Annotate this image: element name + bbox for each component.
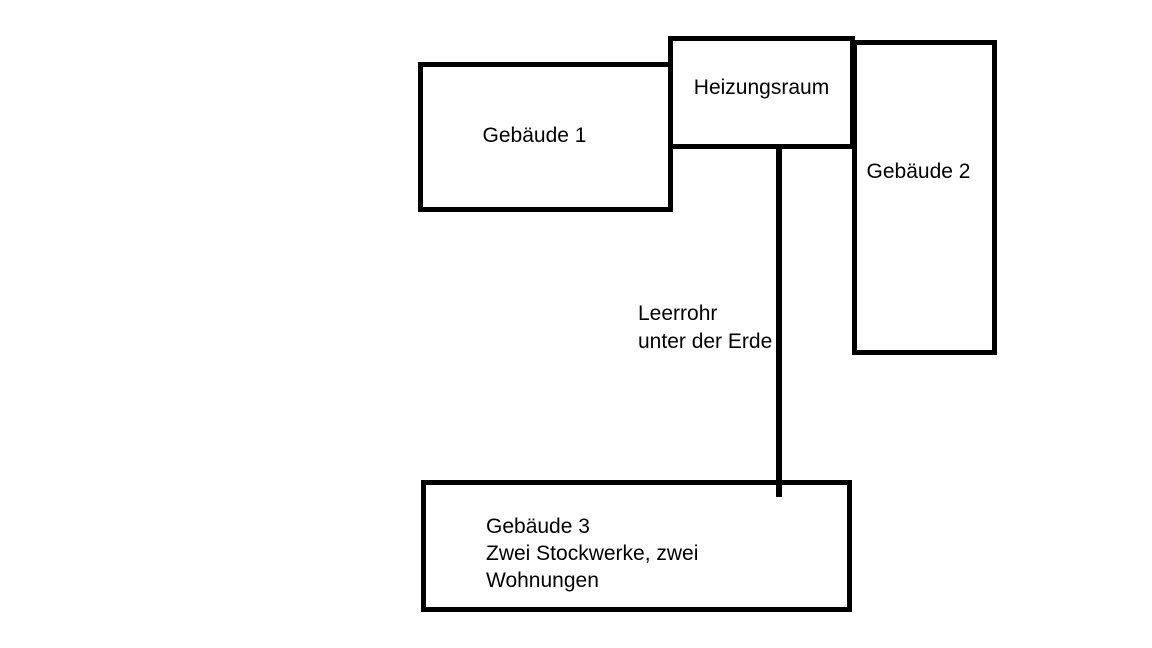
leerrohr-connector-line [776, 146, 782, 497]
gebaeude-3-label-line2: Zwei Stockwerke, zwei [486, 540, 847, 567]
heizungsraum-label: Heizungsraum [694, 74, 829, 101]
heizungsraum-box: Heizungsraum [668, 36, 855, 149]
gebaeude-1-label: Gebäude 1 [483, 122, 587, 149]
gebaeude-3-box: Gebäude 3 Zwei Stockwerke, zwei Wohnunge… [421, 480, 852, 612]
leerrohr-label: Leerrohr unter der Erde [638, 300, 772, 356]
gebaeude-2-label: Gebäude 2 [867, 158, 971, 185]
leerrohr-label-line1: Leerrohr [638, 300, 772, 328]
gebaeude-1-box: Gebäude 1 [418, 62, 673, 212]
leerrohr-label-line2: unter der Erde [638, 328, 772, 356]
gebaeude-3-label-line1: Gebäude 3 [486, 513, 847, 540]
gebaeude-3-label-line3: Wohnungen [486, 567, 847, 594]
diagram-canvas: Gebäude 1 Heizungsraum Gebäude 2 Gebäude… [0, 0, 1152, 648]
gebaeude-2-box: Gebäude 2 [852, 40, 997, 355]
